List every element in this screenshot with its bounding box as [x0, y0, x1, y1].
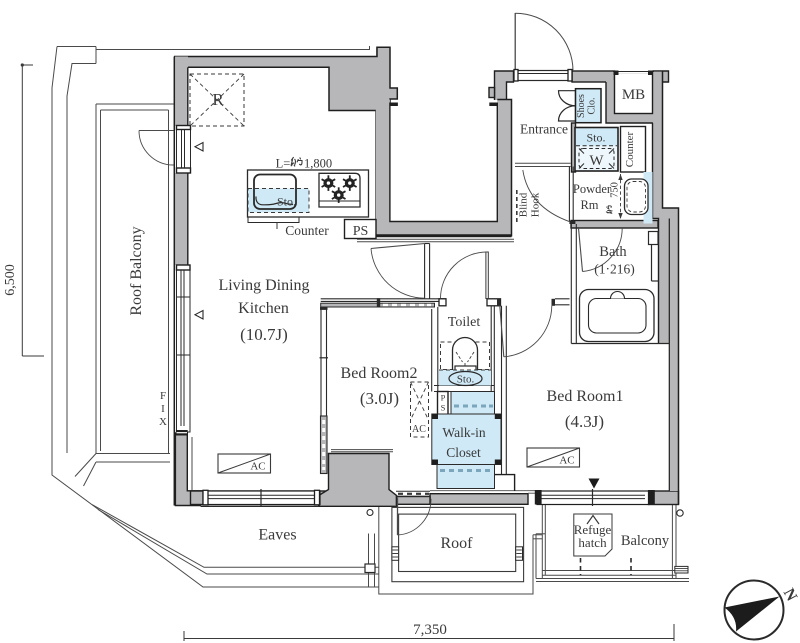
svg-text:(1·216): (1·216) — [594, 262, 635, 277]
svg-text:X: X — [159, 416, 167, 428]
svg-text:Blind: Blind — [518, 192, 530, 217]
svg-text:Counter: Counter — [285, 223, 329, 238]
svg-text:(3.0J): (3.0J) — [360, 389, 399, 408]
svg-text:AC: AC — [412, 424, 426, 435]
svg-text:hatch: hatch — [578, 535, 607, 550]
svg-text:Counter: Counter — [624, 131, 636, 167]
svg-text:PS: PS — [353, 224, 369, 239]
svg-text:Shoes: Shoes — [576, 94, 587, 118]
svg-text:F: F — [160, 390, 166, 402]
svg-text:Roof Balcony: Roof Balcony — [128, 226, 145, 315]
svg-text:7,350: 7,350 — [413, 622, 447, 638]
svg-text:R: R — [212, 90, 224, 109]
svg-text:Bed Room1: Bed Room1 — [547, 388, 624, 405]
svg-text:Sto.: Sto. — [586, 131, 605, 145]
svg-text:Kitchen: Kitchen — [238, 300, 289, 317]
svg-text:AC: AC — [250, 461, 265, 473]
svg-text:Sto.: Sto. — [277, 195, 296, 209]
svg-text:MB: MB — [622, 87, 645, 103]
svg-text:Balcony: Balcony — [621, 533, 670, 549]
svg-text:Entrance: Entrance — [520, 122, 568, 137]
svg-text:Bath: Bath — [599, 244, 627, 260]
svg-text:6,500: 6,500 — [3, 264, 18, 296]
svg-text:Clo.: Clo. — [587, 98, 598, 115]
svg-text:1,800: 1,800 — [304, 157, 332, 171]
svg-text:Bed Room2: Bed Room2 — [341, 365, 418, 382]
svg-text:Living Dining: Living Dining — [218, 277, 309, 294]
svg-text:W: W — [589, 153, 604, 169]
svg-text:Powder: Powder — [573, 182, 612, 196]
svg-text:Rm: Rm — [580, 198, 598, 212]
svg-text:S: S — [441, 403, 446, 413]
svg-text:I: I — [161, 403, 165, 415]
svg-text:(4.3J): (4.3J) — [565, 412, 604, 431]
svg-text:(10.7J): (10.7J) — [240, 325, 288, 344]
svg-text:L=: L= — [276, 157, 291, 171]
svg-text:Sto.: Sto. — [457, 374, 475, 386]
svg-text:750: 750 — [610, 182, 621, 198]
svg-text:Eaves: Eaves — [258, 527, 296, 544]
svg-text:Hook: Hook — [530, 192, 542, 217]
svg-text:Roof: Roof — [441, 535, 474, 552]
svg-text:Walk-in: Walk-in — [442, 425, 485, 440]
svg-text:Toilet: Toilet — [448, 315, 481, 330]
svg-text:Closet: Closet — [446, 445, 481, 460]
svg-text:P: P — [441, 393, 446, 403]
svg-text:AC: AC — [559, 455, 574, 467]
